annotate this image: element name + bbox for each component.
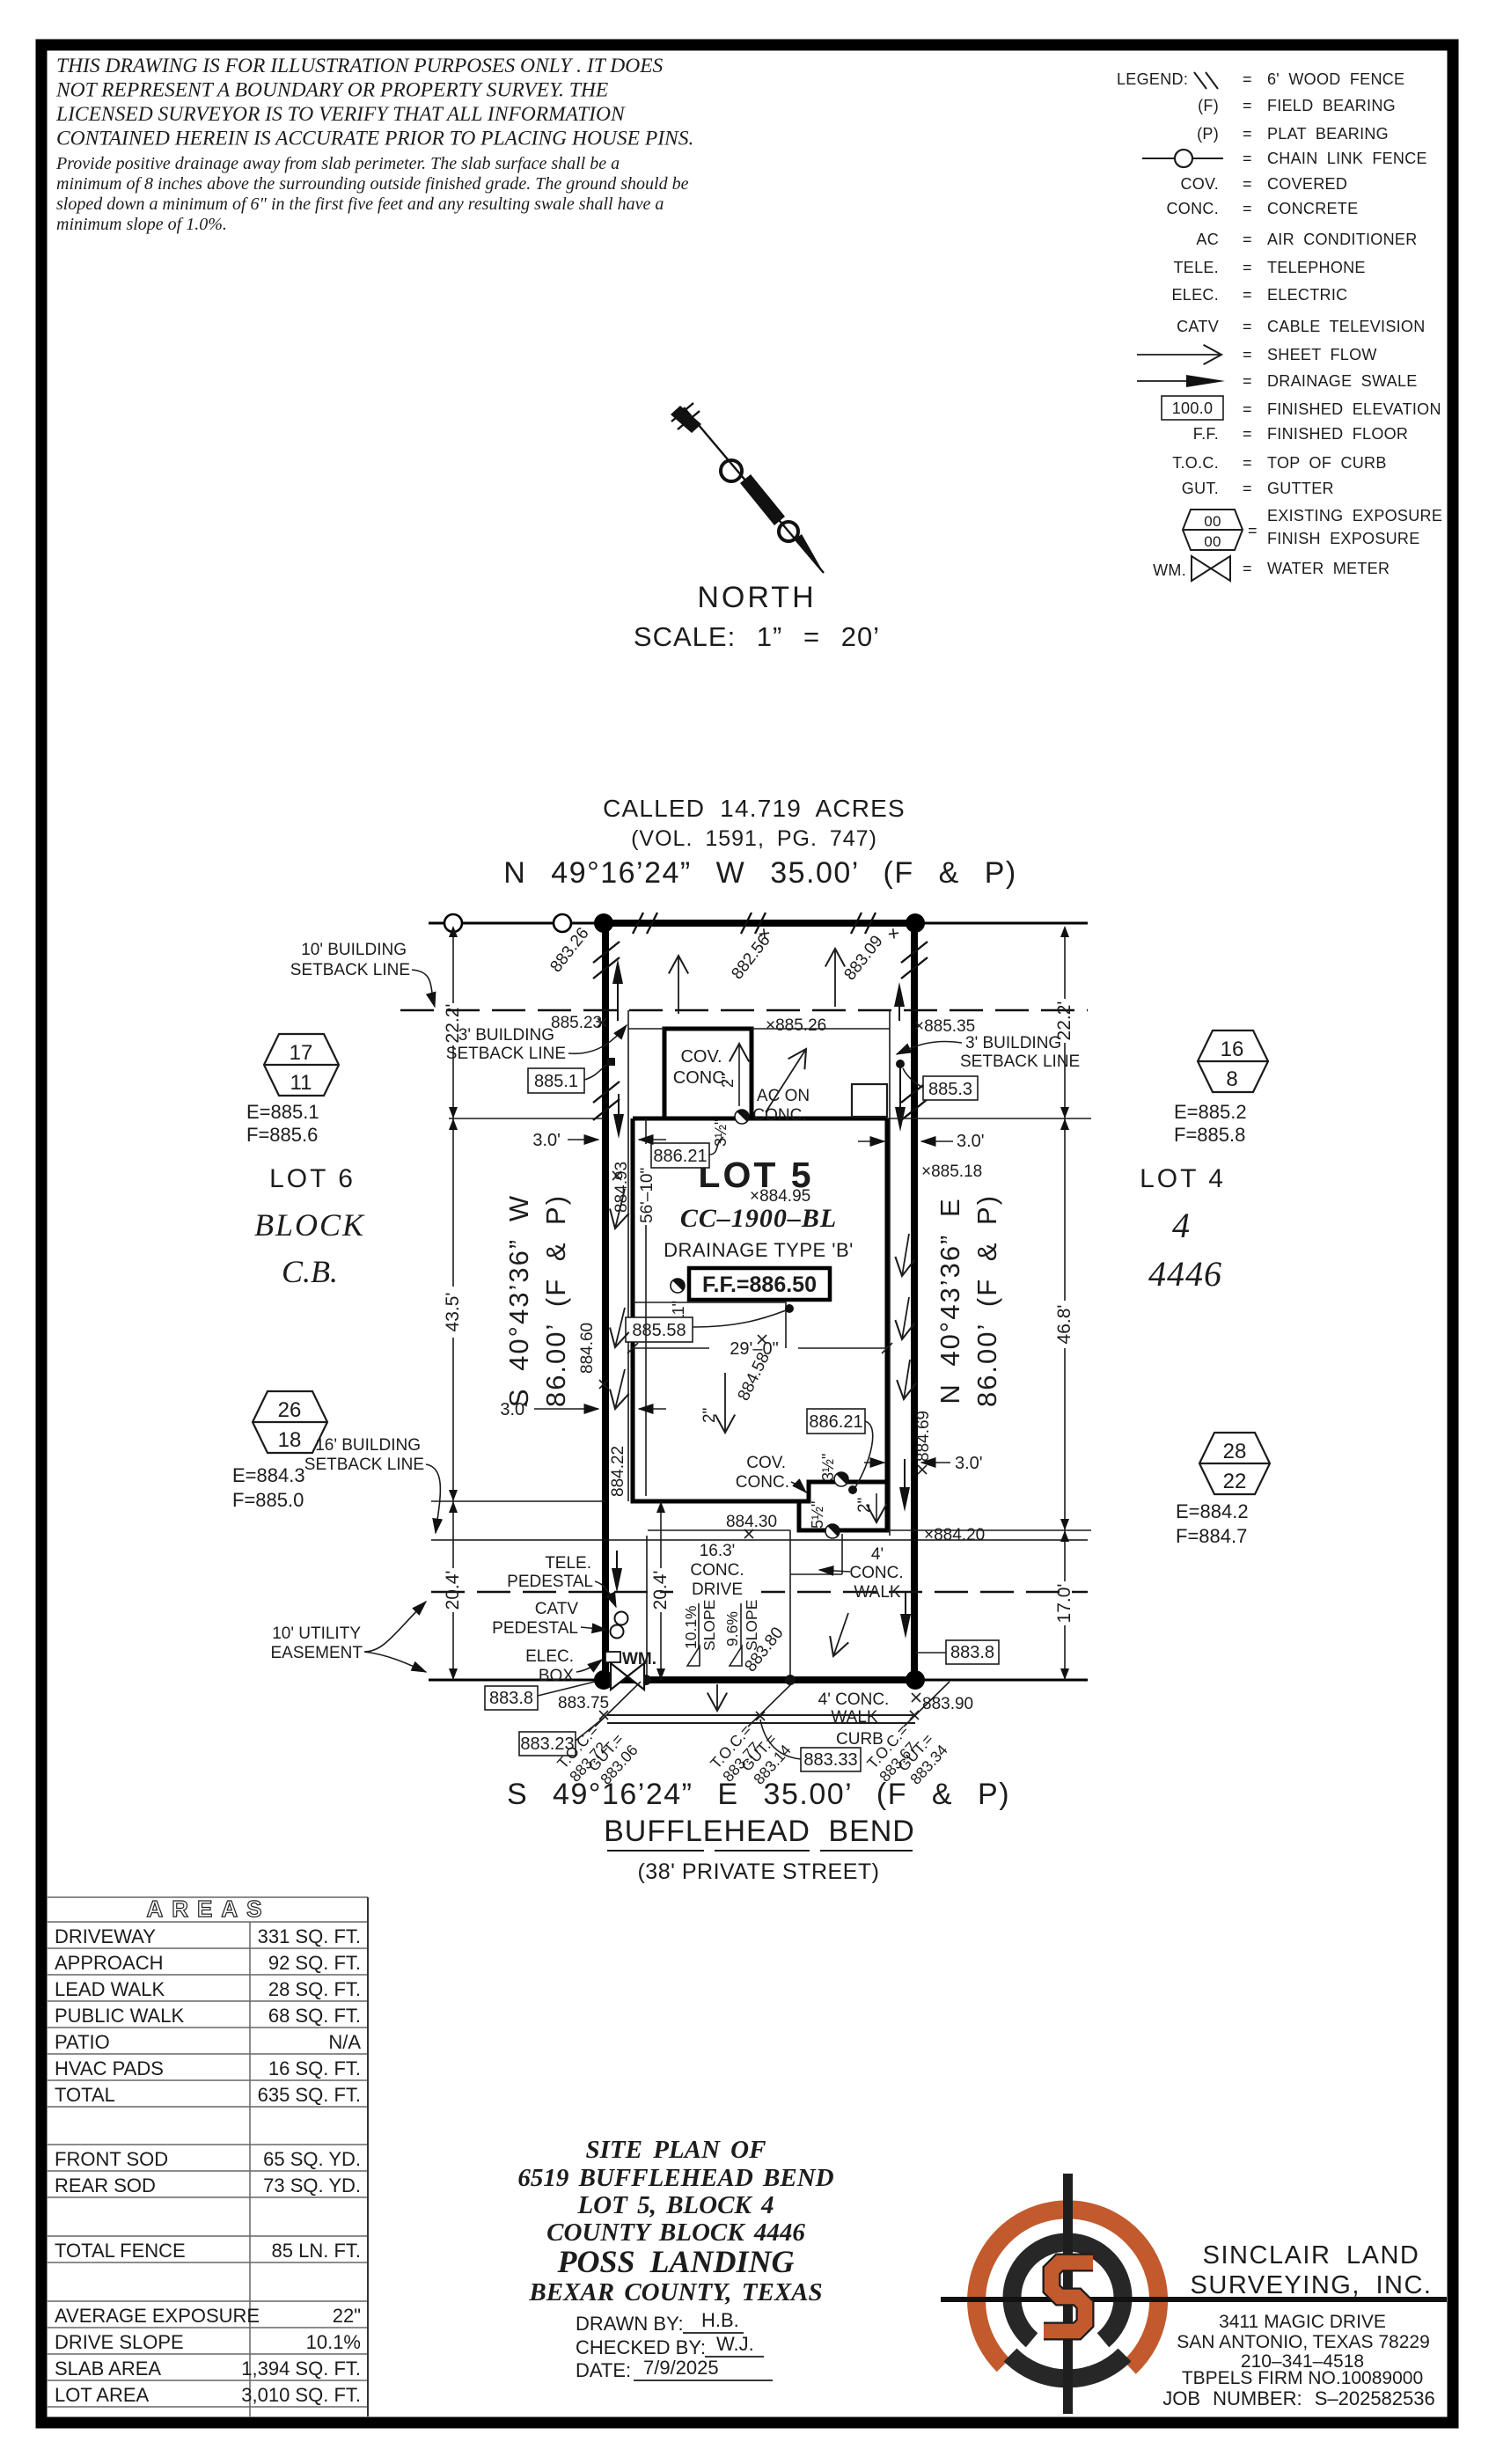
- svg-text:WM.: WM.: [1153, 561, 1186, 579]
- svg-text:JOB NUMBER: S–202582536: JOB NUMBER: S–202582536: [1162, 2387, 1435, 2409]
- svg-text:F=885.8: F=885.8: [1174, 1124, 1245, 1146]
- svg-text:SETBACK LINE: SETBACK LINE: [290, 961, 410, 979]
- svg-text:92 SQ. FT.: 92 SQ. FT.: [268, 1952, 361, 1974]
- svg-text:FIELD BEARING: FIELD BEARING: [1267, 97, 1396, 114]
- svg-text:68 SQ. FT.: 68 SQ. FT.: [268, 2005, 361, 2027]
- svg-text:CONCRETE: CONCRETE: [1267, 200, 1358, 217]
- svg-text:=: =: [1243, 480, 1252, 497]
- svg-text:COV.: COV.: [680, 1047, 722, 1067]
- svg-text:=: =: [1243, 175, 1252, 193]
- svg-text:PEDESTAL: PEDESTAL: [507, 1573, 593, 1591]
- svg-text:POSS LANDING: POSS LANDING: [556, 2244, 794, 2279]
- svg-text:22: 22: [1223, 1470, 1247, 1493]
- svg-text:WALK: WALK: [831, 1708, 877, 1727]
- svg-text:=: =: [1243, 372, 1252, 390]
- svg-text:28 SQ. FT.: 28 SQ. FT.: [268, 1978, 361, 2000]
- svg-text:F=885.0: F=885.0: [232, 1489, 304, 1511]
- svg-text:BUFFLEHEAD BEND: BUFFLEHEAD BEND: [604, 1815, 915, 1848]
- svg-text:AVERAGE EXPOSURE: AVERAGE EXPOSURE: [55, 2305, 260, 2327]
- svg-text:10.1%: 10.1%: [682, 1605, 700, 1649]
- svg-text:S 49°16’24” E 35.00’ (F & P): S 49°16’24” E 35.00’ (F & P): [507, 1778, 1010, 1811]
- svg-text:SLOPE: SLOPE: [700, 1600, 718, 1651]
- svg-text:CATV: CATV: [535, 1600, 579, 1618]
- svg-text:CONTAINED HEREIN IS ACCURATE P: CONTAINED HEREIN IS ACCURATE PRIOR TO PL…: [56, 128, 693, 150]
- svg-text:TELE.: TELE.: [1173, 259, 1219, 276]
- svg-text:16: 16: [1221, 1038, 1244, 1061]
- svg-text:LOT 6: LOT 6: [269, 1164, 356, 1193]
- svg-text:BOX: BOX: [539, 1667, 574, 1685]
- svg-text:28: 28: [1223, 1440, 1247, 1463]
- svg-text:886.21: 886.21: [809, 1412, 862, 1432]
- svg-text:2": 2": [700, 1408, 719, 1423]
- svg-text:22.2': 22.2': [1054, 1001, 1074, 1041]
- svg-text:×885.26: ×885.26: [766, 1016, 826, 1035]
- svg-text:WATER METER: WATER METER: [1267, 560, 1390, 577]
- svg-text:LEAD WALK: LEAD WALK: [55, 1978, 165, 2000]
- svg-text:5½": 5½": [809, 1501, 826, 1529]
- svg-text:3½": 3½": [712, 1119, 730, 1147]
- svg-text:AREAS: AREAS: [146, 1896, 270, 1922]
- svg-text:×884.20: ×884.20: [924, 1526, 985, 1544]
- svg-text:W.J.: W.J.: [716, 2333, 754, 2355]
- svg-text:TOTAL FENCE: TOTAL FENCE: [55, 2240, 186, 2262]
- svg-text:1,394 SQ. FT.: 1,394 SQ. FT.: [241, 2358, 361, 2380]
- svg-text:=: =: [1243, 560, 1252, 577]
- svg-text:DRAINAGE TYPE 'B': DRAINAGE TYPE 'B': [664, 1239, 854, 1261]
- svg-text:SAN ANTONIO, TEXAS 78229: SAN ANTONIO, TEXAS 78229: [1177, 2332, 1430, 2352]
- svg-text:=: =: [1243, 125, 1252, 143]
- svg-text:CONC.: CONC.: [1167, 200, 1220, 217]
- svg-text:885.1: 885.1: [534, 1072, 578, 1091]
- svg-text:3.0': 3.0': [955, 1454, 983, 1473]
- svg-text:635 SQ. FT.: 635 SQ. FT.: [258, 2084, 361, 2106]
- svg-text:16' BUILDING: 16' BUILDING: [315, 1436, 421, 1455]
- svg-text:73 SQ. YD.: 73 SQ. YD.: [263, 2174, 361, 2196]
- svg-text:LICENSED SURVEYOR IS TO VERIFY: LICENSED SURVEYOR IS TO VERIFY THAT ALL …: [55, 103, 626, 126]
- svg-text:LOT 5, BLOCK 4: LOT 5, BLOCK 4: [576, 2191, 774, 2219]
- svg-text:C.B.: C.B.: [282, 1254, 338, 1289]
- svg-text:TBPELS FIRM NO.10089000: TBPELS FIRM NO.10089000: [1182, 2368, 1423, 2388]
- svg-text:7/9/2025: 7/9/2025: [643, 2357, 719, 2379]
- svg-text:=: =: [1243, 97, 1252, 114]
- svg-text:10' UTILITY: 10' UTILITY: [272, 1624, 361, 1643]
- svg-text:×885.18: ×885.18: [921, 1162, 982, 1181]
- svg-text:CONC.: CONC.: [752, 1106, 806, 1125]
- svg-text:E=885.2: E=885.2: [1174, 1101, 1247, 1123]
- svg-text:6' WOOD FENCE: 6' WOOD FENCE: [1267, 70, 1404, 88]
- svg-text:886.21: 886.21: [653, 1147, 707, 1166]
- svg-text:4446: 4446: [1148, 1254, 1222, 1294]
- svg-text:3.0': 3.0': [532, 1131, 561, 1150]
- svg-text:CONC.: CONC.: [690, 1561, 744, 1580]
- svg-text:00: 00: [1204, 533, 1221, 550]
- svg-text:SETBACK LINE: SETBACK LINE: [446, 1045, 566, 1063]
- svg-text:(F): (F): [1198, 97, 1219, 114]
- svg-text:885.58: 885.58: [632, 1321, 686, 1340]
- svg-text:SETBACK LINE: SETBACK LINE: [304, 1456, 424, 1474]
- svg-text:16.3': 16.3': [700, 1542, 736, 1560]
- svg-text:884.93: 884.93: [612, 1162, 631, 1213]
- svg-text:AC: AC: [1196, 231, 1219, 248]
- svg-text:minimum of 8 inches above the: minimum of 8 inches above the surroundin…: [56, 174, 689, 194]
- svg-text:(38' PRIVATE STREET): (38' PRIVATE STREET): [637, 1859, 879, 1884]
- svg-text:NOT REPRESENT A BOUNDARY OR PR: NOT REPRESENT A BOUNDARY OR PROPERTY SUR…: [55, 79, 608, 102]
- svg-text:E=884.2: E=884.2: [1176, 1500, 1249, 1522]
- svg-text:9.6%: 9.6%: [723, 1611, 741, 1646]
- svg-text:884.22: 884.22: [609, 1446, 627, 1497]
- svg-text:N 49°16’24” W 35.00’ (F & P): N 49°16’24” W 35.00’ (F & P): [503, 856, 1016, 890]
- svg-text:3.0': 3.0': [957, 1132, 985, 1151]
- svg-text:SCALE: 1” = 20’: SCALE: 1” = 20’: [634, 621, 880, 652]
- svg-text:43.5': 43.5': [443, 1293, 463, 1332]
- svg-text:=: =: [1243, 318, 1252, 335]
- svg-text:11: 11: [290, 1071, 312, 1095]
- svg-text:F.F.=886.50: F.F.=886.50: [702, 1272, 817, 1297]
- svg-text:=: =: [1243, 150, 1252, 167]
- svg-text:4': 4': [871, 1545, 884, 1564]
- svg-text:EASEMENT: EASEMENT: [270, 1644, 363, 1662]
- svg-text:10.1%: 10.1%: [306, 2331, 361, 2353]
- svg-text:TELE.: TELE.: [545, 1554, 591, 1573]
- svg-text:PEDESTAL: PEDESTAL: [492, 1619, 578, 1638]
- svg-text:883.8: 883.8: [950, 1643, 994, 1662]
- svg-text:ELEC.: ELEC.: [1171, 286, 1219, 304]
- svg-text:CONC.: CONC.: [849, 1564, 903, 1582]
- svg-text:20.4': 20.4': [443, 1571, 463, 1610]
- svg-text:FINISH EXPOSURE: FINISH EXPOSURE: [1267, 530, 1420, 547]
- svg-text:H.B.: H.B.: [701, 2309, 739, 2331]
- svg-text:26: 26: [278, 1398, 302, 1422]
- svg-text:884.69: 884.69: [914, 1411, 933, 1462]
- svg-text:DRIVEWAY: DRIVEWAY: [55, 1925, 156, 1947]
- svg-text:=: =: [1243, 70, 1252, 88]
- svg-text:COUNTY BLOCK 4446: COUNTY BLOCK 4446: [546, 2218, 805, 2247]
- svg-text:4: 4: [1172, 1206, 1190, 1245]
- svg-text:APPROACH: APPROACH: [55, 1952, 163, 1974]
- svg-text:=: =: [1243, 286, 1252, 304]
- svg-text:SETBACK LINE: SETBACK LINE: [960, 1052, 1080, 1071]
- svg-text:×884.95: ×884.95: [750, 1187, 810, 1206]
- svg-text:CHAIN LINK FENCE: CHAIN LINK FENCE: [1267, 150, 1427, 167]
- svg-text:TELEPHONE: TELEPHONE: [1267, 259, 1366, 276]
- svg-text:3' BUILDING: 3' BUILDING: [458, 1026, 554, 1045]
- svg-text:CHECKED BY:: CHECKED BY:: [576, 2336, 706, 2358]
- svg-text:F.F.: F.F.: [1193, 425, 1219, 443]
- svg-text:6519 BUFFLEHEAD BEND: 6519 BUFFLEHEAD BEND: [517, 2164, 833, 2192]
- svg-text:AIR CONDITIONER: AIR CONDITIONER: [1267, 231, 1418, 248]
- svg-text:(P): (P): [1197, 125, 1219, 143]
- svg-text:REAR SOD: REAR SOD: [55, 2174, 156, 2196]
- svg-text:86.00’ (F & P): 86.00’ (F & P): [540, 1194, 571, 1407]
- svg-text:883.33: 883.33: [803, 1750, 857, 1770]
- svg-text:T.O.C.: T.O.C.: [1172, 454, 1219, 472]
- svg-text:86.00’ (F & P): 86.00’ (F & P): [972, 1194, 1002, 1407]
- svg-text:46.8': 46.8': [1054, 1305, 1074, 1345]
- svg-text:F=885.6: F=885.6: [246, 1124, 318, 1146]
- svg-text:56'–10": 56'–10": [638, 1168, 656, 1223]
- svg-text:Provide positive drainage away: Provide positive drainage away from slab…: [55, 154, 620, 173]
- svg-text:sloped down a minimum of 6" in: sloped down a minimum of 6" in the first…: [56, 194, 664, 214]
- svg-text:WALK: WALK: [854, 1583, 900, 1602]
- svg-text:884.60: 884.60: [578, 1323, 597, 1374]
- svg-text:2": 2": [719, 1074, 737, 1088]
- svg-text:SITE PLAN OF: SITE PLAN OF: [586, 2136, 766, 2164]
- svg-text:=: =: [1248, 522, 1258, 539]
- svg-text:BEXAR COUNTY, TEXAS: BEXAR COUNTY, TEXAS: [528, 2278, 822, 2306]
- svg-text:22": 22": [333, 2305, 361, 2327]
- svg-text:=: =: [1243, 454, 1252, 472]
- svg-text:COV.: COV.: [746, 1454, 786, 1472]
- svg-text:10' BUILDING: 10' BUILDING: [301, 941, 407, 959]
- svg-text:883.8: 883.8: [489, 1689, 533, 1708]
- svg-text:4' CONC.: 4' CONC.: [818, 1690, 890, 1709]
- svg-text:DRAWN BY:: DRAWN BY:: [576, 2313, 684, 2335]
- svg-text:20.4': 20.4': [650, 1571, 671, 1610]
- svg-text:3' BUILDING: 3' BUILDING: [965, 1034, 1061, 1052]
- svg-text:minimum slope of 1.0%.: minimum slope of 1.0%.: [56, 215, 227, 234]
- svg-text:S 40°43’36” W: S 40°43’36” W: [503, 1194, 534, 1407]
- svg-text:16 SQ. FT.: 16 SQ. FT.: [268, 2057, 361, 2079]
- svg-text:85 LN. FT.: 85 LN. FT.: [272, 2240, 361, 2262]
- svg-text:885.23: 885.23: [551, 1014, 602, 1032]
- svg-text:331 SQ. FT.: 331 SQ. FT.: [258, 1925, 361, 1947]
- svg-text:17.0': 17.0': [1054, 1584, 1074, 1624]
- svg-text:SLAB AREA: SLAB AREA: [55, 2358, 161, 2380]
- svg-text:PATIO: PATIO: [55, 2031, 110, 2053]
- svg-text:SURVEYING, INC.: SURVEYING, INC.: [1191, 2271, 1433, 2299]
- svg-text:CC–1900–BL: CC–1900–BL: [680, 1204, 837, 1233]
- svg-text:884.30: 884.30: [726, 1513, 777, 1531]
- svg-text:COVERED: COVERED: [1267, 175, 1347, 193]
- svg-text:(VOL. 1591, PG. 747): (VOL. 1591, PG. 747): [631, 826, 877, 851]
- svg-text:CATV: CATV: [1177, 318, 1219, 335]
- svg-text:22.2': 22.2': [443, 1004, 463, 1044]
- svg-text:CALLED 14.719 ACRES: CALLED 14.719 ACRES: [603, 795, 906, 822]
- svg-text:=: =: [1243, 259, 1252, 276]
- svg-text:SINCLAIR LAND: SINCLAIR LAND: [1203, 2241, 1420, 2270]
- svg-text:=: =: [1243, 231, 1252, 248]
- svg-text:HVAC PADS: HVAC PADS: [55, 2057, 164, 2079]
- svg-text:883.75: 883.75: [558, 1694, 609, 1712]
- svg-text:F=884.7: F=884.7: [1176, 1525, 1247, 1547]
- svg-text:SHEET FLOW: SHEET FLOW: [1267, 346, 1377, 363]
- svg-text:CONC.: CONC.: [736, 1473, 789, 1492]
- svg-text:NORTH: NORTH: [697, 581, 816, 614]
- svg-text:PUBLIC WALK: PUBLIC WALK: [55, 2005, 184, 2027]
- svg-text:DATE:: DATE:: [576, 2359, 631, 2381]
- svg-text:3411 MAGIC DRIVE: 3411 MAGIC DRIVE: [1219, 2312, 1386, 2332]
- svg-text:EXISTING EXPOSURE: EXISTING EXPOSURE: [1267, 507, 1442, 524]
- svg-text:885.3: 885.3: [928, 1080, 972, 1099]
- svg-text:883.90: 883.90: [922, 1695, 973, 1713]
- svg-text:DRIVE SLOPE: DRIVE SLOPE: [55, 2331, 184, 2353]
- svg-text:TOP OF CURB: TOP OF CURB: [1267, 454, 1387, 472]
- svg-text:DRAINAGE SWALE: DRAINAGE SWALE: [1267, 372, 1418, 390]
- svg-text:100.0: 100.0: [1172, 400, 1214, 417]
- svg-text:ELEC.: ELEC.: [525, 1647, 574, 1666]
- svg-text:=: =: [1243, 346, 1252, 363]
- svg-text:=: =: [1243, 425, 1252, 443]
- svg-text:DRIVE: DRIVE: [692, 1580, 743, 1599]
- svg-text:LOT AREA: LOT AREA: [55, 2384, 150, 2406]
- svg-text:3,010 SQ. FT.: 3,010 SQ. FT.: [241, 2384, 361, 2406]
- svg-text:ELECTRIC: ELECTRIC: [1267, 286, 1347, 304]
- svg-text:CABLE TELEVISION: CABLE TELEVISION: [1267, 318, 1426, 335]
- svg-text:17: 17: [290, 1041, 313, 1065]
- svg-text:AC ON: AC ON: [757, 1087, 810, 1105]
- svg-text:FRONT SOD: FRONT SOD: [55, 2148, 168, 2170]
- svg-text:2": 2": [855, 1498, 874, 1513]
- svg-text:WM.: WM.: [622, 1650, 656, 1668]
- svg-text:N/A: N/A: [328, 2031, 361, 2053]
- svg-text:65 SQ. YD.: 65 SQ. YD.: [263, 2148, 361, 2170]
- svg-text:BLOCK: BLOCK: [254, 1207, 365, 1243]
- svg-text:=: =: [1243, 200, 1252, 217]
- svg-text:×885.35: ×885.35: [914, 1017, 975, 1036]
- svg-text:18: 18: [278, 1428, 302, 1452]
- svg-text:FINISHED ELEVATION: FINISHED ELEVATION: [1267, 400, 1441, 418]
- svg-text:8: 8: [1226, 1067, 1237, 1091]
- svg-text:GUTTER: GUTTER: [1267, 480, 1334, 497]
- svg-text:THIS DRAWING IS FOR ILLUSTRATI: THIS DRAWING IS FOR ILLUSTRATION PURPOSE…: [56, 55, 664, 77]
- svg-text:LOT 4: LOT 4: [1140, 1164, 1226, 1193]
- svg-text:00: 00: [1204, 513, 1221, 530]
- svg-text:PLAT BEARING: PLAT BEARING: [1267, 125, 1389, 143]
- svg-text:GUT.: GUT.: [1182, 480, 1219, 497]
- svg-text:E=885.1: E=885.1: [246, 1101, 319, 1123]
- svg-text:LEGEND:: LEGEND:: [1117, 70, 1188, 88]
- svg-text:FINISHED FLOOR: FINISHED FLOOR: [1267, 425, 1408, 443]
- svg-text:COV.: COV.: [1180, 175, 1219, 193]
- svg-text:3.0': 3.0': [500, 1400, 528, 1419]
- svg-text:TOTAL: TOTAL: [55, 2084, 115, 2106]
- svg-text:E=884.3: E=884.3: [232, 1464, 305, 1486]
- svg-text:=: =: [1243, 400, 1252, 418]
- svg-text:N 40°43’36” E: N 40°43’36” E: [935, 1197, 965, 1404]
